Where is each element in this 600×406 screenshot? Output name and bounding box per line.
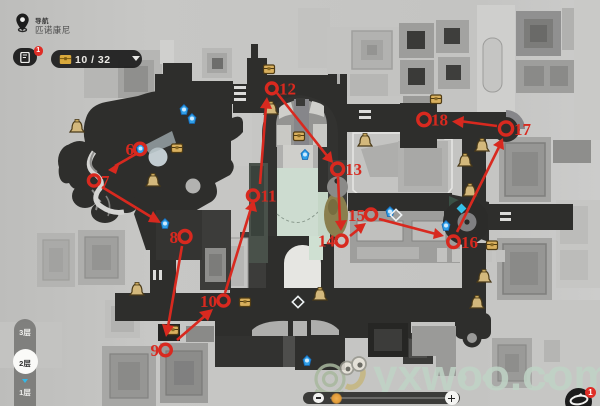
svg-text:17: 17 bbox=[514, 120, 532, 139]
svg-text:7: 7 bbox=[101, 172, 110, 191]
svg-text:10: 10 bbox=[200, 292, 217, 311]
svg-text:18: 18 bbox=[431, 111, 448, 130]
svg-text:14: 14 bbox=[318, 232, 336, 251]
svg-text:9: 9 bbox=[151, 341, 160, 360]
svg-text:8: 8 bbox=[170, 228, 179, 247]
svg-text:12: 12 bbox=[279, 80, 296, 99]
svg-text:11: 11 bbox=[261, 187, 277, 206]
svg-text:6: 6 bbox=[126, 140, 135, 159]
svg-text:16: 16 bbox=[461, 233, 478, 252]
svg-text:15: 15 bbox=[348, 206, 365, 225]
svg-text:13: 13 bbox=[345, 160, 362, 179]
